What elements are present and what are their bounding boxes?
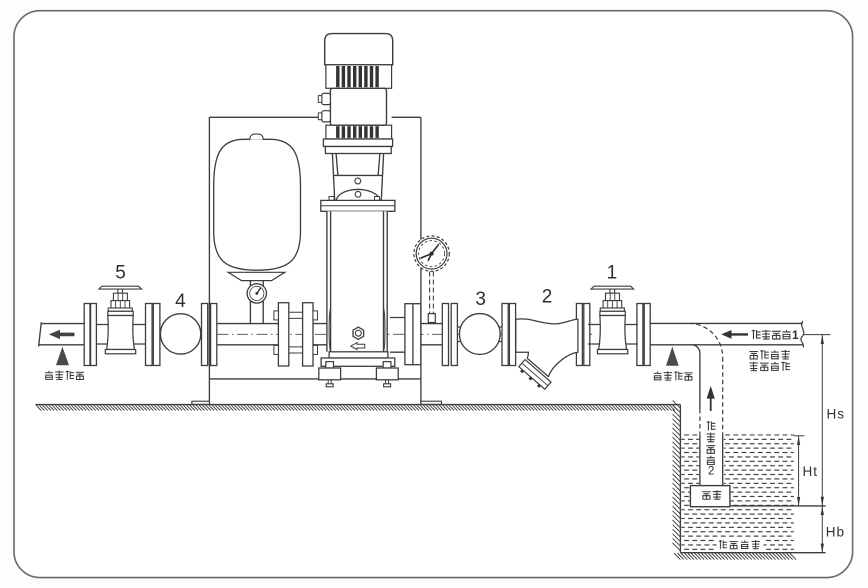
svg-text:Ht: Ht	[803, 464, 819, 479]
svg-text:1: 1	[607, 262, 618, 283]
svg-text:3: 3	[475, 289, 486, 310]
svg-text:4: 4	[175, 291, 186, 312]
svg-text:5: 5	[115, 263, 126, 284]
svg-text:2: 2	[708, 466, 714, 478]
svg-text:Hs: Hs	[827, 407, 846, 422]
svg-text:2: 2	[542, 287, 553, 308]
svg-text:Hb: Hb	[826, 525, 845, 540]
svg-text:1: 1	[792, 328, 799, 342]
